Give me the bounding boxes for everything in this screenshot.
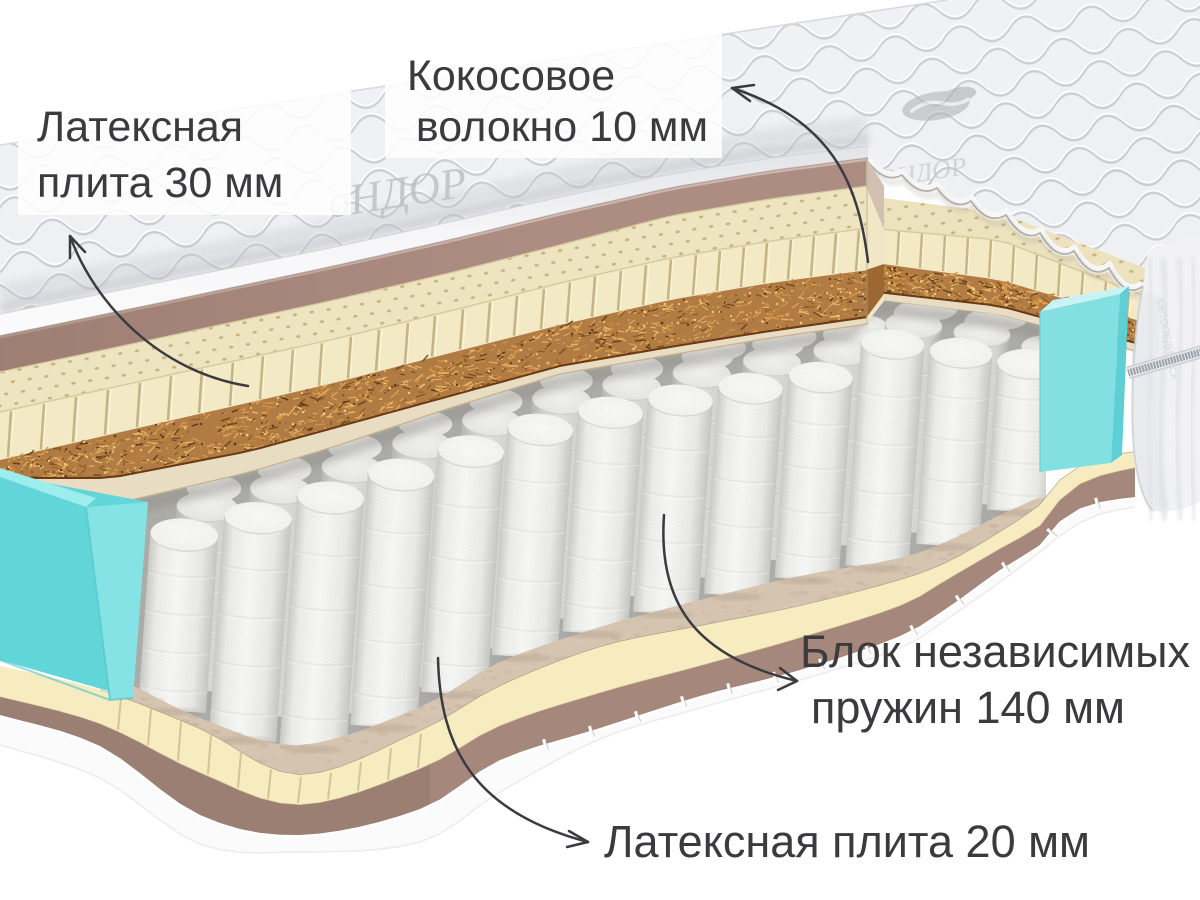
- svg-text:Кокосовое: Кокосовое: [407, 52, 615, 100]
- svg-text:Латексная: Латексная: [37, 103, 243, 151]
- svg-text:Блок независимых: Блок независимых: [800, 626, 1191, 677]
- svg-text:плита 30 мм: плита 30 мм: [37, 159, 283, 207]
- svg-text:Латексная плита 20 мм: Латексная плита 20 мм: [604, 816, 1090, 867]
- svg-text:волокно 10 мм: волокно 10 мм: [416, 103, 708, 151]
- svg-text:пружин 140 мм: пружин 140 мм: [811, 682, 1125, 733]
